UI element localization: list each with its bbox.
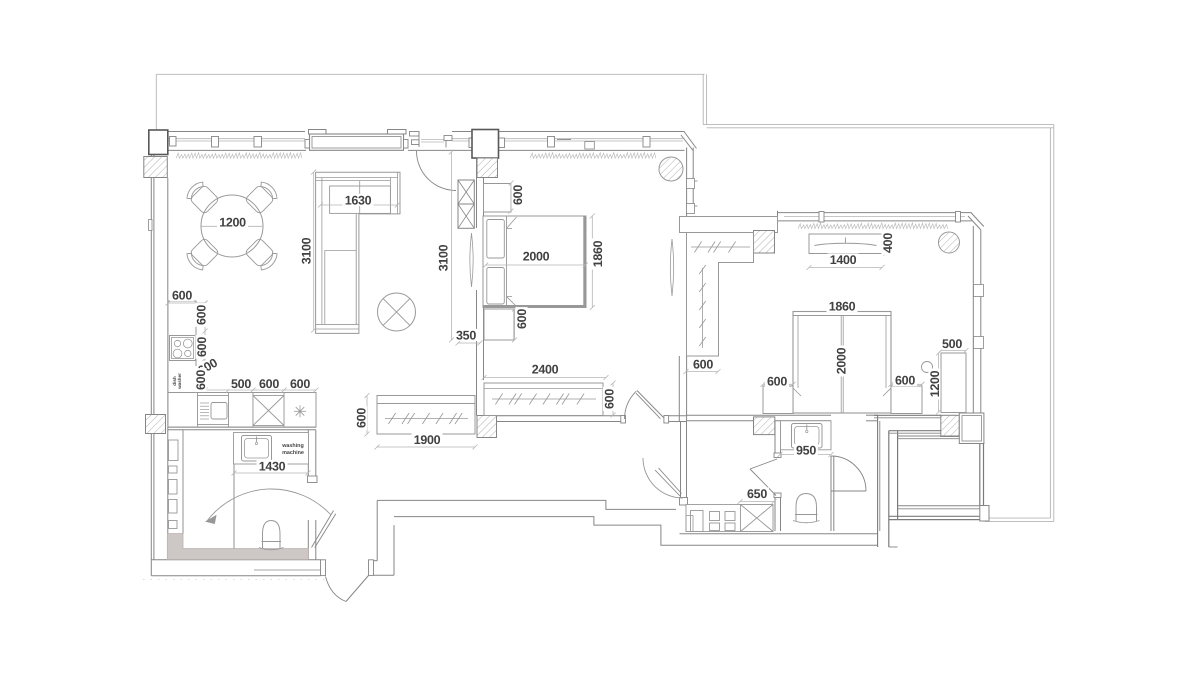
svg-text:600: 600 xyxy=(511,185,525,205)
svg-text:600: 600 xyxy=(895,373,915,387)
svg-text:2000: 2000 xyxy=(834,347,848,374)
svg-text:600: 600 xyxy=(515,309,529,329)
svg-text:2000: 2000 xyxy=(523,249,550,263)
svg-text:400: 400 xyxy=(881,233,895,253)
svg-text:600: 600 xyxy=(172,288,192,302)
svg-text:600: 600 xyxy=(767,374,787,388)
svg-text:600: 600 xyxy=(354,408,368,428)
svg-text:1430: 1430 xyxy=(259,459,286,473)
svg-text:1630: 1630 xyxy=(345,193,372,207)
svg-text:1200: 1200 xyxy=(928,370,942,397)
svg-text:600: 600 xyxy=(259,377,279,391)
svg-text:600: 600 xyxy=(290,377,310,391)
svg-text:600: 600 xyxy=(602,389,616,409)
svg-text:650: 650 xyxy=(747,487,767,501)
svg-text:1860: 1860 xyxy=(829,299,856,313)
svg-text:950: 950 xyxy=(796,443,816,457)
svg-text:1200: 1200 xyxy=(219,215,246,229)
svg-text:600: 600 xyxy=(693,357,713,371)
svg-text:600: 600 xyxy=(194,370,208,390)
svg-text:3100: 3100 xyxy=(299,237,313,264)
svg-text:500: 500 xyxy=(942,337,962,351)
svg-text:1860: 1860 xyxy=(591,240,605,267)
svg-text:600: 600 xyxy=(195,337,209,357)
svg-text:washing: washing xyxy=(281,443,304,449)
svg-text:3100: 3100 xyxy=(436,244,450,271)
svg-text:350: 350 xyxy=(456,328,476,342)
svg-text:1900: 1900 xyxy=(414,433,441,447)
svg-text:machine: machine xyxy=(282,450,304,456)
svg-text:1400: 1400 xyxy=(830,253,857,267)
svg-text:2400: 2400 xyxy=(532,362,559,376)
svg-text:500: 500 xyxy=(231,377,251,391)
svg-text:600: 600 xyxy=(194,305,208,325)
